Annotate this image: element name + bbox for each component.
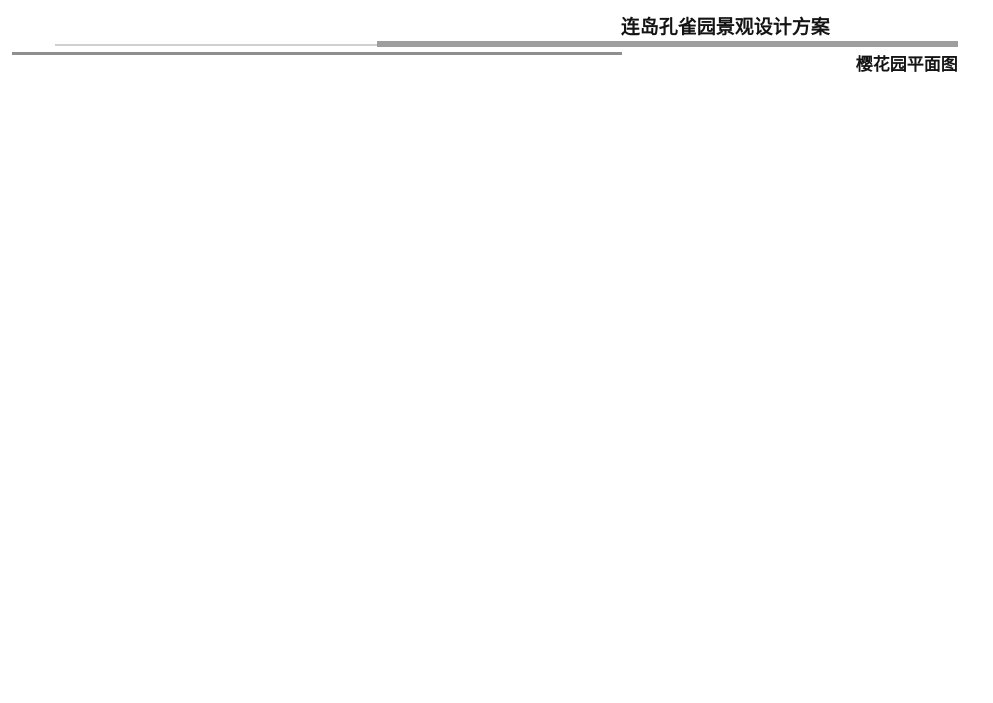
footer-text: LIANDAO KONGQUEYUAN JINGGUAN SHEJI FANGA… xyxy=(13,672,454,703)
header-rule-thick xyxy=(377,41,958,47)
page-title: 连岛孔雀园景观设计方案 xyxy=(621,12,830,39)
site-plan-map xyxy=(5,71,838,668)
header-rule-thin xyxy=(55,44,377,46)
footer-bar: LIANDAO KONGQUEYUAN JINGGUAN SHEJI FANGA… xyxy=(0,672,993,703)
header-rule-mid xyxy=(12,52,622,55)
plan-sheet: 连岛孔雀园景观设计方案 樱花园平面图 LIANDAO KONGQUEYUAN J… xyxy=(0,0,993,703)
drawing-subtitle: 樱花园平面图 xyxy=(856,50,958,75)
